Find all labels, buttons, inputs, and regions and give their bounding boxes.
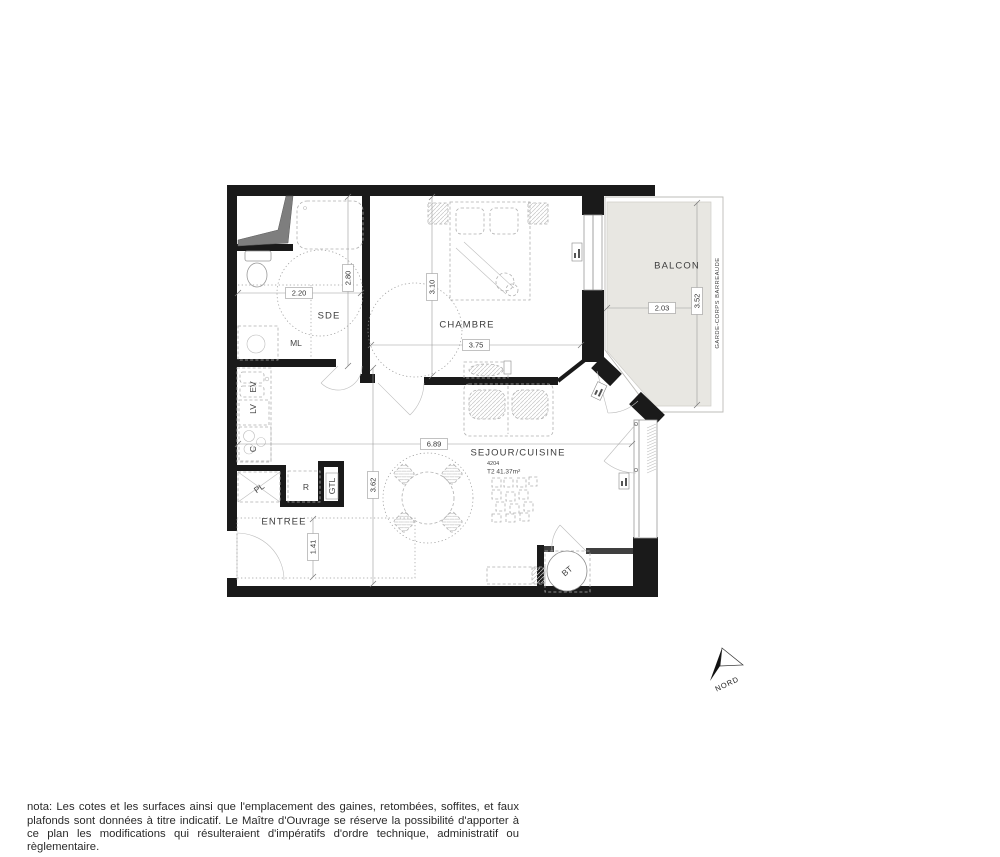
sideboard: [487, 567, 545, 584]
window-tag: [619, 473, 629, 489]
dim-label: 3.62: [369, 478, 378, 493]
nightstand-left: [428, 203, 448, 224]
label-r: R: [303, 482, 309, 492]
room-label-entree: ENTREE: [261, 517, 306, 528]
label-lv: LV: [248, 404, 258, 414]
shower: [297, 201, 363, 249]
entrance-door: [237, 533, 284, 580]
dim-label: 2.03: [655, 304, 670, 313]
nightstand-right: [528, 203, 548, 224]
label-c: C: [248, 446, 258, 452]
garde-corps-note: GARDE-CORPS BARREAUDE: [715, 257, 721, 348]
dim-sejour-depth: 3.62: [368, 365, 379, 587]
north-label: NORD: [714, 675, 741, 694]
north-arrow: NORD: [710, 648, 743, 693]
sde-door: [321, 366, 362, 390]
dim-label: 3.52: [693, 294, 702, 309]
unit-number: 4204: [487, 461, 499, 467]
dim-label: 2.20: [292, 289, 307, 298]
dim-chambre-width: 3.75: [368, 340, 584, 351]
dim-label: 1.41: [309, 540, 318, 555]
unit-type-surface: T2 41.37m²: [487, 469, 521, 476]
label-ml: ML: [290, 338, 302, 348]
sejour-window: [604, 420, 657, 538]
dim-entree-depth: 1.41: [308, 516, 319, 580]
label-pl: PL: [252, 481, 266, 495]
dim-label: 3.75: [469, 341, 484, 350]
room-label-chambre: CHAMBRE: [439, 320, 494, 331]
label-gtl: GTL: [327, 477, 337, 494]
dim-sde-depth: 2.80: [343, 194, 354, 369]
room-label-sde: SDE: [318, 311, 341, 322]
chambre-door: [378, 383, 424, 415]
label-ev: EV: [248, 381, 258, 393]
kitchen-plan-detail: [492, 477, 537, 522]
floor-plan-page: 2.20 2.80 3.10 3.75 6.89 3.62 1.41: [0, 0, 1000, 857]
dim-sejour-width: 6.89: [235, 439, 635, 450]
bt-door: [552, 525, 586, 551]
window-tag: [591, 382, 607, 401]
dim-label: 3.10: [428, 280, 437, 295]
chambre-bench: [464, 361, 511, 378]
disclaimer-note: nota: Les cotes et les surfaces ainsi qu…: [27, 801, 519, 854]
room-label-balcon: BALCON: [654, 261, 700, 272]
washing-machine: [238, 326, 278, 360]
dim-label: 2.80: [344, 271, 353, 286]
turning-circle-sejour: [383, 453, 473, 543]
bed: [450, 202, 530, 300]
soffit-wedge: [238, 196, 293, 246]
chambre-window: [584, 215, 602, 290]
room-label-sejour: SEJOUR/CUISINE: [470, 448, 565, 459]
sofa: [464, 384, 553, 436]
window-tag: [572, 243, 582, 261]
dim-label: 6.89: [427, 440, 442, 449]
toilet: [245, 251, 271, 287]
floor-plan-drawing: 2.20 2.80 3.10 3.75 6.89 3.62 1.41: [0, 0, 1000, 857]
dining-table: [393, 463, 464, 534]
label-gtl-box: GTL: [326, 473, 338, 499]
